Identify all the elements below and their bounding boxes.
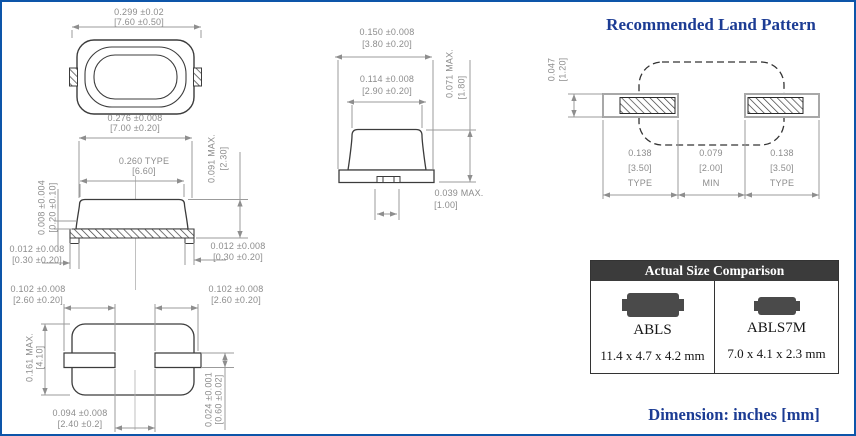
dim-label: [3.80 ±0.20] — [342, 39, 432, 49]
dim-label: TYPE — [608, 178, 672, 188]
dim-label: 0.276 ±0.008 — [90, 113, 180, 123]
size-comparison-cell-abls: ABLS 11.4 x 4.7 x 4.2 mm — [591, 281, 715, 373]
dim-label: [2.60 ±0.20] — [6, 295, 70, 305]
dim-label: 0.138 — [608, 148, 672, 158]
package-size: 7.0 x 4.1 x 2.3 mm — [715, 346, 838, 362]
ceramic-base-hatch — [70, 229, 194, 238]
dim-label: 0.150 ±0.008 — [342, 27, 432, 37]
dim-label: 0.012 ±0.008 — [6, 244, 68, 254]
abls7m-package-image — [758, 297, 796, 315]
dim-label: 0.079 — [679, 148, 743, 158]
dim-label: [1.00] — [410, 200, 482, 210]
left-terminal-hatch — [70, 68, 78, 86]
dim-label: TYPE — [750, 178, 814, 188]
package-name: ABLS7M — [715, 320, 838, 337]
dim-label: [2.60 ±0.20] — [204, 295, 268, 305]
dim-label: [0.60 ±0.02] — [214, 358, 225, 436]
dim-label: [2.00] — [679, 163, 743, 173]
dim-label: 0.039 MAX. — [423, 188, 495, 198]
package-name: ABLS — [591, 322, 714, 339]
dim-label: 0.071 MAX. — [445, 39, 456, 109]
abls-package-image — [627, 293, 679, 317]
size-comparison-cell-abls7m: ABLS7M 7.0 x 4.1 x 2.3 mm — [715, 281, 838, 373]
dim-label: [0.30 ±0.20] — [6, 255, 68, 265]
bottom-tab — [377, 177, 400, 183]
right-pad-hatch — [748, 98, 803, 114]
dim-label: 0.299 ±0.02 — [94, 7, 184, 17]
left-pad — [64, 353, 115, 368]
dim-label: 0.260 TYPE — [99, 156, 189, 166]
datasheet-drawing-page: Recommended Land Pattern Dimension: inch… — [0, 0, 856, 436]
lid-profile — [76, 200, 188, 230]
right-foot — [185, 238, 194, 244]
left-pad-hatch — [620, 98, 675, 114]
dim-label: [1.80] — [457, 63, 468, 113]
dim-label: [3.50] — [750, 163, 814, 173]
dim-label: 0.091 MAX. — [207, 124, 218, 194]
dimension-units-note: Dimension: inches [mm] — [614, 405, 854, 425]
dim-label: [6.60] — [99, 166, 189, 176]
dim-label: [7.00 ±0.20] — [90, 123, 180, 133]
land-pattern-title: Recommended Land Pattern — [572, 15, 850, 35]
dim-label: [0.20 ±0.10] — [48, 173, 59, 243]
dim-label: 0.102 ±0.008 — [204, 284, 268, 294]
dim-label: 0.102 ±0.008 — [6, 284, 70, 294]
side-view-drawing — [70, 176, 194, 290]
dim-label: 0.114 ±0.008 — [342, 74, 432, 84]
dim-label: [1.20] — [558, 42, 569, 98]
dim-label: [2.90 ±0.20] — [342, 86, 432, 96]
size-comparison-table: Actual Size Comparison ABLS 11.4 x 4.7 x… — [590, 260, 839, 374]
dim-label: [2.30] — [219, 124, 230, 194]
right-terminal-hatch — [194, 68, 202, 86]
dim-label: MIN — [679, 178, 743, 188]
top-view-drawing — [70, 40, 202, 114]
lid-profile — [348, 130, 426, 171]
dim-label: [0.30 ±0.20] — [205, 252, 271, 262]
dim-label: [3.50] — [608, 163, 672, 173]
package-size: 11.4 x 4.7 x 4.2 mm — [591, 348, 714, 364]
dim-label: [2.40 ±0.2] — [49, 419, 111, 429]
dim-label: [7.60 ±0.50] — [94, 17, 184, 27]
size-comparison-header: Actual Size Comparison — [591, 261, 838, 281]
dim-label: 0.008 ±0.004 — [37, 173, 48, 243]
dim-label: 0.138 — [750, 148, 814, 158]
dim-label: 0.094 ±0.008 — [49, 408, 111, 418]
dim-label: [4.10] — [35, 323, 46, 393]
left-foot — [70, 238, 79, 244]
dim-label: 0.047 — [547, 42, 558, 98]
end-view-drawing — [339, 130, 434, 183]
right-pad — [155, 353, 201, 368]
dim-label: 0.012 ±0.008 — [205, 241, 271, 251]
